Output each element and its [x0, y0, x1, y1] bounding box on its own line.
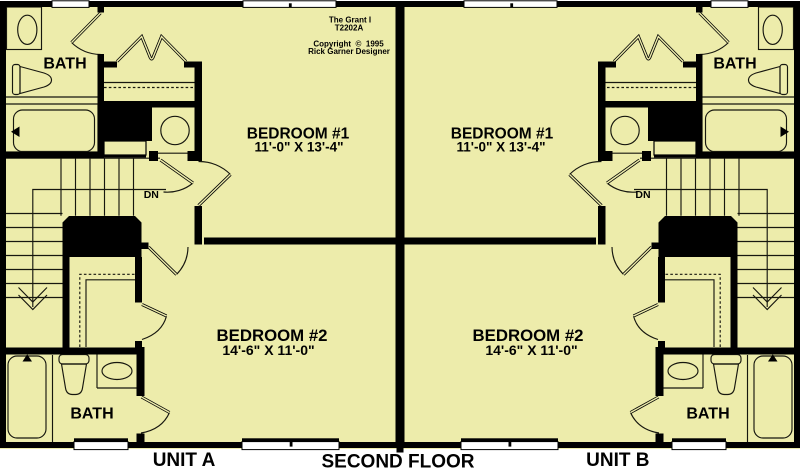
- svg-text:Rick Garner Designer: Rick Garner Designer: [308, 47, 390, 56]
- svg-text:11'-0" X 13'-4": 11'-0" X 13'-4": [456, 139, 545, 154]
- svg-text:UNIT B: UNIT B: [586, 450, 649, 471]
- svg-text:UNIT A: UNIT A: [153, 450, 216, 471]
- svg-text:BATH: BATH: [70, 405, 113, 422]
- svg-text:DN: DN: [144, 189, 159, 201]
- svg-text:14'-6" X 11'-0": 14'-6" X 11'-0": [222, 342, 314, 358]
- svg-text:T2202A: T2202A: [335, 23, 364, 32]
- svg-text:BATH: BATH: [713, 56, 756, 73]
- svg-text:BATH: BATH: [686, 405, 729, 422]
- svg-text:SECOND FLOOR: SECOND FLOOR: [321, 452, 474, 473]
- svg-text:14'-6" X 11'-0": 14'-6" X 11'-0": [485, 342, 577, 358]
- svg-text:11'-0" X 13'-4": 11'-0" X 13'-4": [254, 139, 343, 154]
- svg-text:DN: DN: [635, 189, 650, 201]
- svg-text:BATH: BATH: [43, 56, 86, 73]
